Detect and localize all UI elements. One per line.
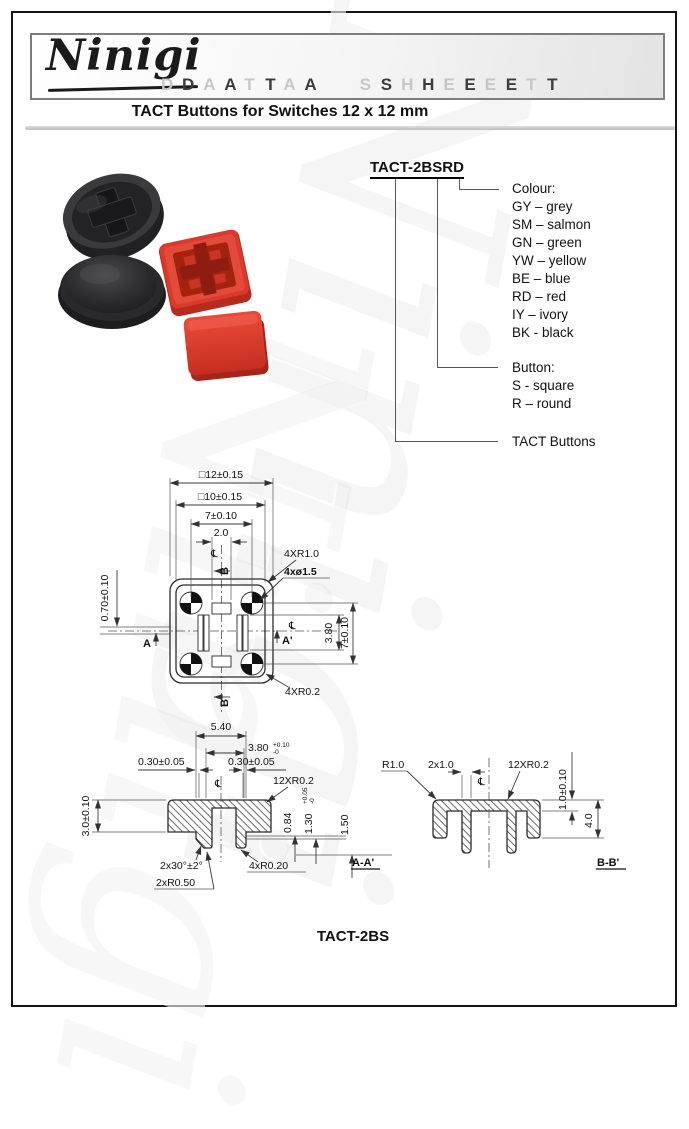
dim-slot-height: 3.80	[323, 623, 335, 644]
section-aa-drawing: ℄ 5.40 3.80 +0.10 -0 0.30±0.05 0.30±0.05…	[80, 721, 392, 889]
dim-030-left: 0.30±0.05	[138, 756, 185, 768]
dim-flange-thickness: 1.0±0.10	[557, 769, 569, 810]
colour-legend: Colour: GY – grey SM – salmon GN – green…	[512, 180, 591, 342]
colour-heading: Colour:	[512, 180, 591, 198]
datasheet-page: { "header": { "brand": "Ninigi", "datash…	[0, 0, 689, 1017]
dim-offset: 0.70±0.10	[99, 575, 111, 622]
colour-option: RD – red	[512, 288, 591, 306]
dim-380-tol-minus: -0	[273, 749, 279, 756]
code-colour-segment: RD	[442, 159, 464, 179]
cross-slots	[198, 603, 248, 667]
brand-logo: Ninigi	[46, 31, 202, 81]
dim-084: 0.84	[282, 812, 294, 833]
top-view-drawing: □12±0.15 □10±0.15 7±0.10 2.0 0.70±0.10 4…	[99, 469, 358, 712]
dim-height: 3.0±0.10	[80, 795, 92, 836]
colour-option: SM – salmon	[512, 216, 591, 234]
aa-section-profile	[168, 800, 271, 848]
colour-option: BK - black	[512, 324, 591, 342]
photo-square-button-top	[183, 310, 269, 382]
connector-family	[395, 179, 498, 442]
centerline-symbol: ℄	[288, 620, 296, 632]
page-title: TACT Buttons for Switches 12 x 12 mm	[0, 103, 560, 121]
family-label: TACT Buttons	[512, 433, 596, 451]
dim-slot-width: 2.0	[214, 527, 229, 539]
section-marker-a-prime: A'	[282, 635, 293, 647]
dim-total-height: 4.0	[583, 813, 595, 828]
callout-4xr020: 4xR0.20	[249, 860, 288, 872]
button-option: S - square	[512, 377, 574, 395]
dim-380: 3.80	[248, 742, 269, 754]
code-family-segment: TACT-2B	[370, 159, 432, 179]
header-box: Ninigi DATA SHEET	[30, 33, 665, 100]
section-aa-label: A-A'	[352, 857, 375, 869]
callout-holes: 4xø1.5	[284, 566, 317, 578]
callout-12xr02: 12XR0.2	[508, 759, 549, 771]
callout-12xr02: 12XR0.2	[273, 775, 314, 787]
title-divider	[25, 126, 675, 130]
section-marker-b-top: B	[219, 567, 231, 575]
centerline-symbol: ℄	[210, 548, 218, 560]
datasheet-label: DATA SHEET	[182, 75, 587, 95]
callout-r10: R1.0	[382, 759, 404, 771]
dim-030-right: 0.30±0.05	[228, 756, 275, 768]
section-bb-label: B-B'	[597, 857, 620, 869]
section-marker-a: A	[143, 638, 151, 650]
model-label: TACT-2BS	[273, 928, 433, 945]
photo-round-button-top	[58, 255, 166, 329]
callout-corner-radius: 4XR1.0	[284, 548, 319, 560]
dim-130: 1.30	[303, 813, 315, 834]
colour-option: IY – ivory	[512, 306, 591, 324]
code-button-segment: S	[432, 159, 442, 179]
colour-option: GY – grey	[512, 198, 591, 216]
colour-option: GN – green	[512, 234, 591, 252]
callout-small-radius: 4XR0.2	[285, 686, 320, 698]
button-heading: Button:	[512, 359, 574, 377]
technical-drawings: □12±0.15 □10±0.15 7±0.10 2.0 0.70±0.10 4…	[60, 455, 680, 910]
centerline-symbol: ℄	[214, 778, 222, 790]
section-marker-b-bottom: B	[219, 699, 231, 707]
dim-540: 5.40	[211, 721, 232, 733]
bb-section-profile	[433, 800, 540, 853]
dim-2x10: 2x1.0	[428, 759, 454, 771]
photo-square-button-underside	[157, 228, 253, 317]
dim-130-tol-minus: -0	[309, 798, 316, 804]
dim-inner-square: □10±0.15	[198, 491, 242, 503]
callout-2xr050: 2xR0.50	[156, 877, 195, 889]
button-option: R – round	[512, 395, 574, 413]
colour-option: BE – blue	[512, 270, 591, 288]
dim-outer-square: □12±0.15	[199, 469, 243, 481]
dim-hole-spacing-h: 7±0.10	[205, 510, 237, 522]
colour-option: YW – yellow	[512, 252, 591, 270]
centerline-symbol: ℄	[477, 776, 485, 788]
dim-130-tol-plus: +0.05	[302, 787, 309, 804]
brand-underline	[48, 85, 198, 92]
dim-380-tol-plus: +0.10	[273, 742, 290, 749]
dim-150: 1.50	[339, 814, 351, 835]
part-number-code: TACT-2BSRD	[370, 159, 464, 176]
callout-chamfer: 2x30°±2°	[160, 860, 203, 872]
button-legend: Button: S - square R – round	[512, 359, 574, 413]
dim-hole-spacing-v: 7±0.10	[339, 617, 351, 649]
section-bb-drawing: ℄ R1.0 2x1.0 12XR0.2 1.0±0.10 4.0 B-B'	[381, 752, 626, 869]
product-photos	[45, 170, 275, 385]
